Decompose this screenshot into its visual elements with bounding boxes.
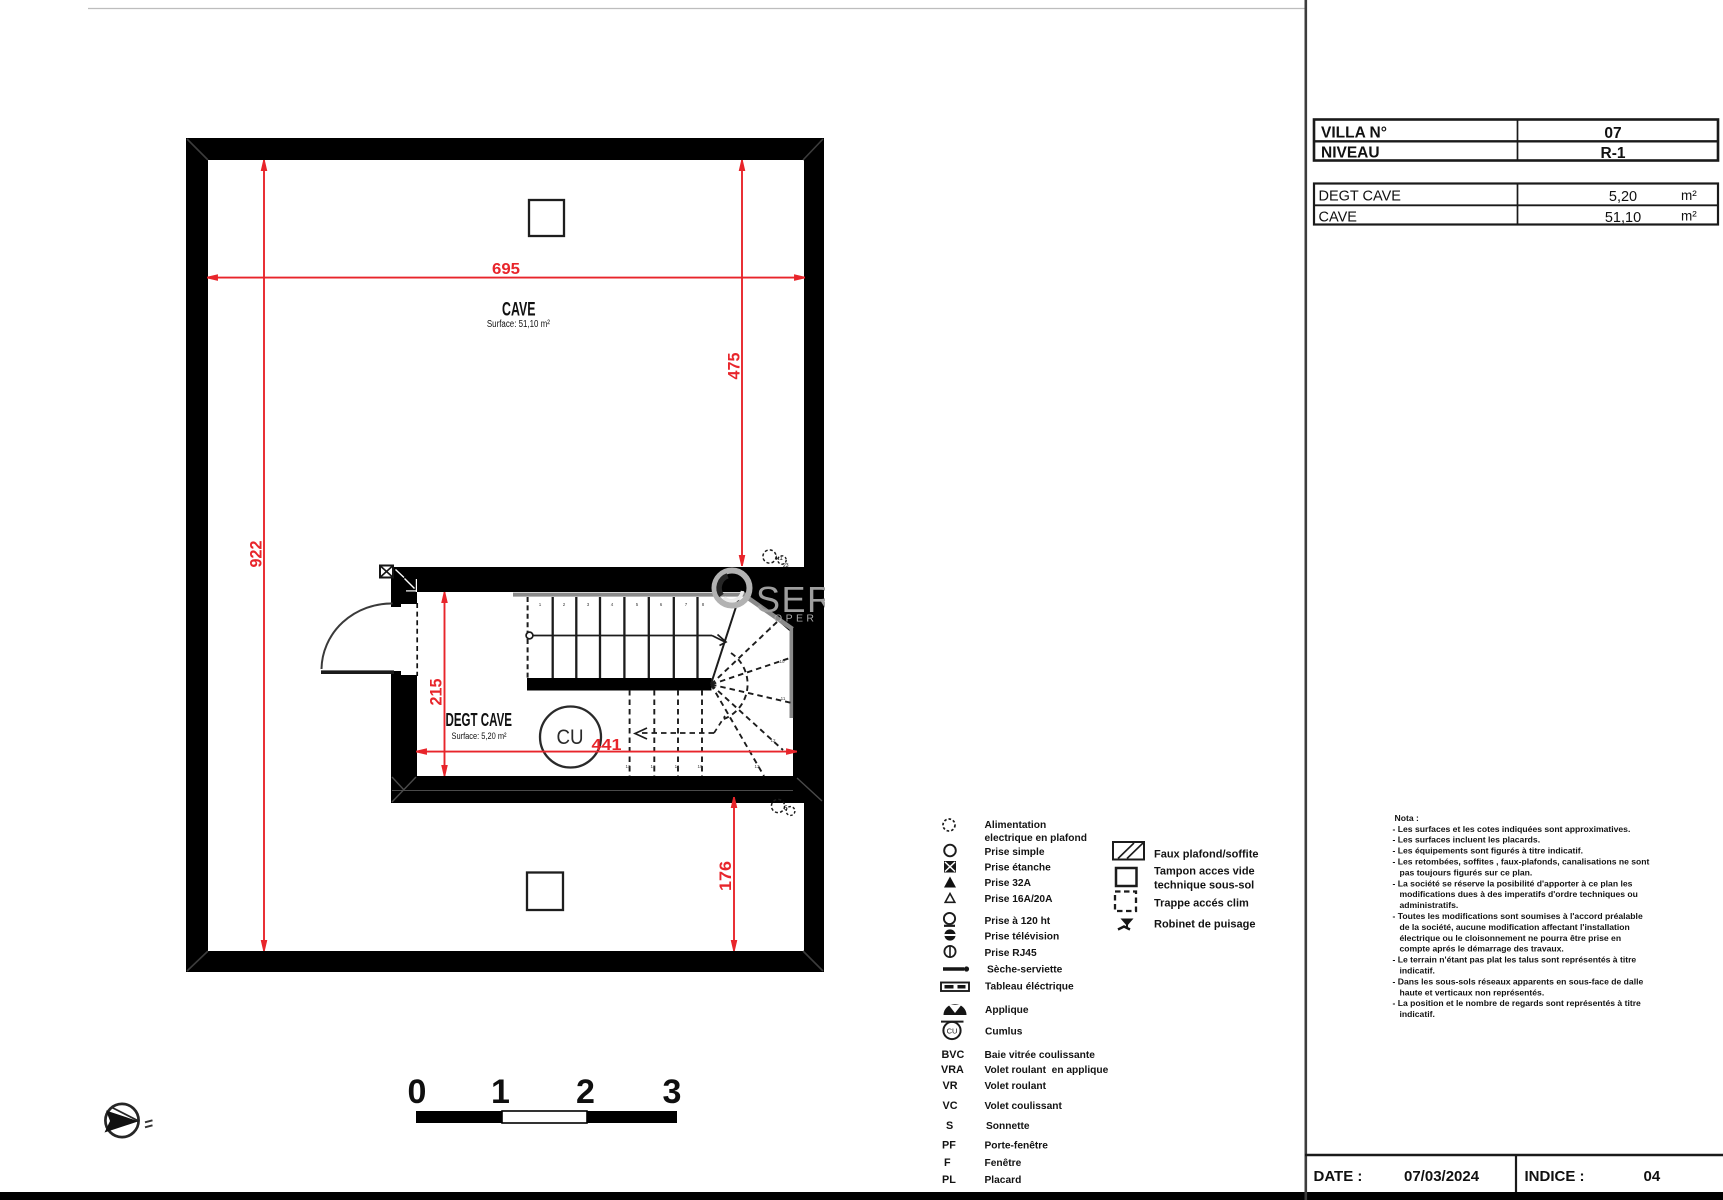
svg-text:CU: CU [947, 1027, 958, 1036]
svg-text:Sèche-serviette: Sèche-serviette [987, 965, 1063, 976]
svg-text:de la société, aucune modifica: de la société, aucune modification affec… [1400, 922, 1630, 932]
svg-text:- La société se réserve la pos: - La société se réserve la posibilité d'… [1393, 878, 1633, 888]
svg-text:Tableau éléctrique: Tableau éléctrique [985, 982, 1074, 993]
svg-text:Surface: 5,20 m²: Surface: 5,20 m² [452, 731, 507, 742]
svg-text:m²: m² [1681, 209, 1697, 224]
svg-text:Surface: 51,10 m²: Surface: 51,10 m² [487, 319, 551, 330]
svg-text:- Les surfaces incluent les pl: - Les surfaces incluent les placards. [1393, 835, 1541, 845]
svg-text:Placard: Placard [985, 1175, 1022, 1186]
svg-text:10: 10 [779, 659, 785, 664]
svg-text:administratifs.: administratifs. [1400, 900, 1459, 910]
svg-text:0: 0 [408, 1073, 427, 1111]
svg-text:Applique: Applique [985, 1005, 1029, 1016]
svg-text:Prise RJ45: Prise RJ45 [985, 948, 1037, 959]
svg-text:- Le terrain n'étant pas plat: - Le terrain n'étant pas plat les talus … [1393, 955, 1637, 965]
svg-text:INDICE :: INDICE : [1525, 1168, 1585, 1185]
svg-text:Baie vitrée coulissante: Baie vitrée coulissante [985, 1050, 1096, 1061]
svg-text:Fenêtre: Fenêtre [985, 1158, 1022, 1169]
svg-text:NIVEAU: NIVEAU [1321, 145, 1380, 162]
svg-text:k1: k1 [776, 555, 783, 562]
svg-text:VR: VR [943, 1080, 958, 1092]
svg-text:- Les retombées, soffites , fa: - Les retombées, soffites , faux-plafond… [1393, 857, 1650, 867]
svg-text:DATE :: DATE : [1314, 1168, 1363, 1185]
svg-text:215: 215 [428, 679, 446, 706]
svg-text:Prise étanche: Prise étanche [985, 863, 1052, 874]
svg-text:5: 5 [784, 805, 788, 812]
svg-text:CAVE: CAVE [1319, 210, 1358, 226]
svg-text:695: 695 [492, 261, 520, 278]
svg-text:5,20: 5,20 [1609, 189, 1637, 205]
svg-text:13: 13 [754, 764, 760, 769]
svg-text:2: 2 [576, 1073, 595, 1111]
svg-text:Prise télévision: Prise télévision [985, 932, 1060, 943]
svg-text:indicatif.: indicatif. [1400, 1009, 1435, 1019]
svg-text:Trappe accés clim: Trappe accés clim [1154, 898, 1249, 910]
svg-text:- La position et le nombre de: - La position et le nombre de regards so… [1393, 998, 1642, 1008]
svg-text:- Les équipements sont figurés: - Les équipements sont figurés à titre i… [1393, 846, 1584, 856]
svg-text:11: 11 [781, 696, 786, 701]
svg-text:VRA: VRA [941, 1064, 964, 1076]
svg-text:technique sous-sol: technique sous-sol [1154, 880, 1254, 892]
svg-text:DEGT CAVE: DEGT CAVE [1319, 189, 1402, 205]
svg-text:11: 11 [675, 764, 680, 769]
svg-text:F: F [944, 1157, 951, 1169]
svg-text:3: 3 [663, 1073, 682, 1111]
svg-text:Volet coulissant: Volet coulissant [985, 1101, 1063, 1112]
svg-text:- Dans les sous-sols réseaux a: - Dans les sous-sols réseaux apparents e… [1393, 976, 1644, 986]
svg-text:Prise simple: Prise simple [985, 847, 1045, 858]
svg-text:R-1: R-1 [1601, 145, 1626, 162]
svg-text:Volet roulant: Volet roulant [985, 1081, 1047, 1092]
svg-text:VILLA N°: VILLA N° [1321, 125, 1387, 142]
svg-text:Prise 32A: Prise 32A [985, 878, 1032, 889]
svg-text:Volet roulant en applique: Volet roulant en applique [985, 1065, 1109, 1076]
svg-text:04: 04 [1644, 1168, 1661, 1185]
svg-text:S: S [946, 1120, 953, 1132]
svg-text:modifications dues à des imper: modifications dues à des imperatifs d'or… [1400, 889, 1638, 899]
svg-text:electrique en plafond: electrique en plafond [985, 833, 1087, 844]
svg-text:Cumlus: Cumlus [985, 1027, 1023, 1038]
svg-text:07/03/2024: 07/03/2024 [1404, 1168, 1480, 1185]
svg-text:1: 1 [491, 1073, 510, 1111]
svg-text:13: 13 [625, 764, 631, 769]
svg-text:Prise 16A/20A: Prise 16A/20A [985, 894, 1054, 905]
svg-text:07: 07 [1604, 125, 1621, 142]
svg-text:compte aprés le démarrage des: compte aprés le démarrage des travaux. [1400, 944, 1564, 954]
svg-text:électrique ou le cloisonnement: électrique ou le cloisonnement ne pourra… [1400, 933, 1622, 943]
svg-text:23: 23 [783, 563, 789, 569]
svg-text:indicatif.: indicatif. [1400, 966, 1435, 976]
svg-text:Robinet de puisage: Robinet de puisage [1154, 919, 1255, 931]
svg-text:- Toutes les modifications son: - Toutes les modifications sont soumises… [1393, 911, 1643, 921]
svg-text:441: 441 [592, 737, 622, 754]
svg-text:Faux plafond/soffite: Faux plafond/soffite [1154, 849, 1259, 861]
svg-text:pas toujours figurés sur ce pl: pas toujours figurés sur ce plan. [1400, 867, 1533, 877]
svg-text:CU: CU [557, 726, 584, 749]
svg-text:12: 12 [770, 738, 776, 743]
svg-text:Prise à 120 ht: Prise à 120 ht [985, 916, 1051, 927]
svg-text:Nota :: Nota : [1395, 813, 1419, 823]
svg-text:CAVE: CAVE [502, 300, 536, 321]
svg-text:DEGT CAVE: DEGT CAVE [446, 709, 513, 730]
svg-text:Sonnette: Sonnette [986, 1121, 1030, 1132]
svg-text:PL: PL [942, 1174, 956, 1186]
svg-text:922: 922 [248, 541, 266, 568]
svg-text:Alimentation: Alimentation [985, 820, 1047, 831]
svg-text:BVC: BVC [942, 1049, 965, 1061]
svg-text:PF: PF [942, 1140, 956, 1152]
svg-text:51,10: 51,10 [1605, 210, 1641, 226]
svg-text:haute et verticaux non représe: haute et verticaux non représentés. [1400, 987, 1545, 997]
svg-text:475: 475 [726, 353, 744, 380]
svg-text:OPER: OPER [774, 613, 817, 625]
svg-text:m²: m² [1681, 188, 1697, 203]
svg-text:VC: VC [943, 1100, 958, 1112]
svg-text:10: 10 [697, 764, 703, 769]
svg-text:- Les surfaces et les cotes in: - Les surfaces et les cotes indiquées so… [1393, 824, 1631, 834]
svg-text:176: 176 [717, 861, 735, 891]
svg-text:12: 12 [650, 764, 656, 769]
svg-text:Tampon acces vide: Tampon acces vide [1154, 866, 1255, 878]
svg-text:Porte-fenêtre: Porte-fenêtre [985, 1141, 1049, 1152]
